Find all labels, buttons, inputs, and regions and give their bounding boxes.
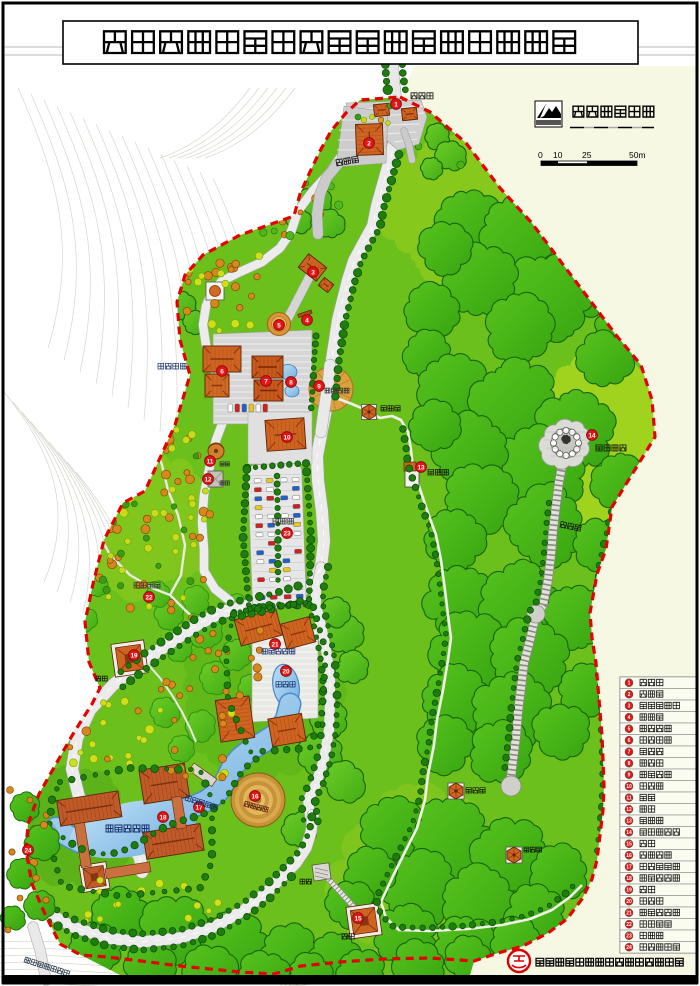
svg-text:18: 18 [159,814,167,821]
svg-text:17: 17 [626,865,632,871]
svg-text:12: 12 [204,476,212,483]
svg-text:13: 13 [626,819,632,825]
svg-text:4: 4 [305,317,309,324]
svg-text:24: 24 [626,945,632,951]
svg-text:24: 24 [24,847,32,854]
svg-text:9: 9 [317,383,321,390]
svg-text:1: 1 [394,101,398,108]
svg-text:7: 7 [264,378,268,385]
svg-text:1: 1 [628,681,631,687]
svg-text:21: 21 [271,641,279,648]
svg-text:2: 2 [628,692,631,698]
svg-text:18: 18 [626,876,632,882]
svg-text:16: 16 [626,853,632,859]
svg-text:4: 4 [628,715,631,721]
svg-text:10: 10 [283,434,291,441]
svg-text:22: 22 [145,594,153,601]
svg-text:10: 10 [553,150,563,160]
svg-text:20: 20 [626,899,632,905]
svg-text:3: 3 [311,269,315,276]
svg-text:11: 11 [207,458,214,465]
svg-text:21: 21 [626,911,632,917]
svg-text:19: 19 [626,888,632,894]
svg-text:13: 13 [417,464,425,471]
svg-text:6: 6 [628,738,631,744]
svg-text:50m: 50m [629,150,646,160]
svg-text:0: 0 [538,150,543,160]
svg-text:9: 9 [628,773,631,779]
svg-text:5: 5 [628,727,631,733]
svg-text:15: 15 [354,915,362,922]
svg-text:11: 11 [626,796,632,802]
svg-text:7: 7 [628,750,631,756]
svg-text:6: 6 [220,368,224,375]
svg-text:22: 22 [626,922,632,928]
svg-text:19: 19 [130,652,138,659]
svg-text:12: 12 [626,807,632,813]
svg-text:20: 20 [282,668,290,675]
svg-text:14: 14 [588,432,596,439]
svg-text:5: 5 [277,322,281,329]
svg-text:25: 25 [582,150,592,160]
svg-text:2: 2 [367,140,371,147]
svg-text:23: 23 [626,934,632,940]
svg-text:8: 8 [289,379,293,386]
svg-text:16: 16 [251,793,259,800]
svg-text:15: 15 [626,842,632,848]
svg-text:10: 10 [626,784,632,790]
svg-text:23: 23 [283,530,291,537]
svg-text:3: 3 [628,704,631,710]
svg-text:8: 8 [628,761,631,767]
svg-text:14: 14 [626,830,632,836]
